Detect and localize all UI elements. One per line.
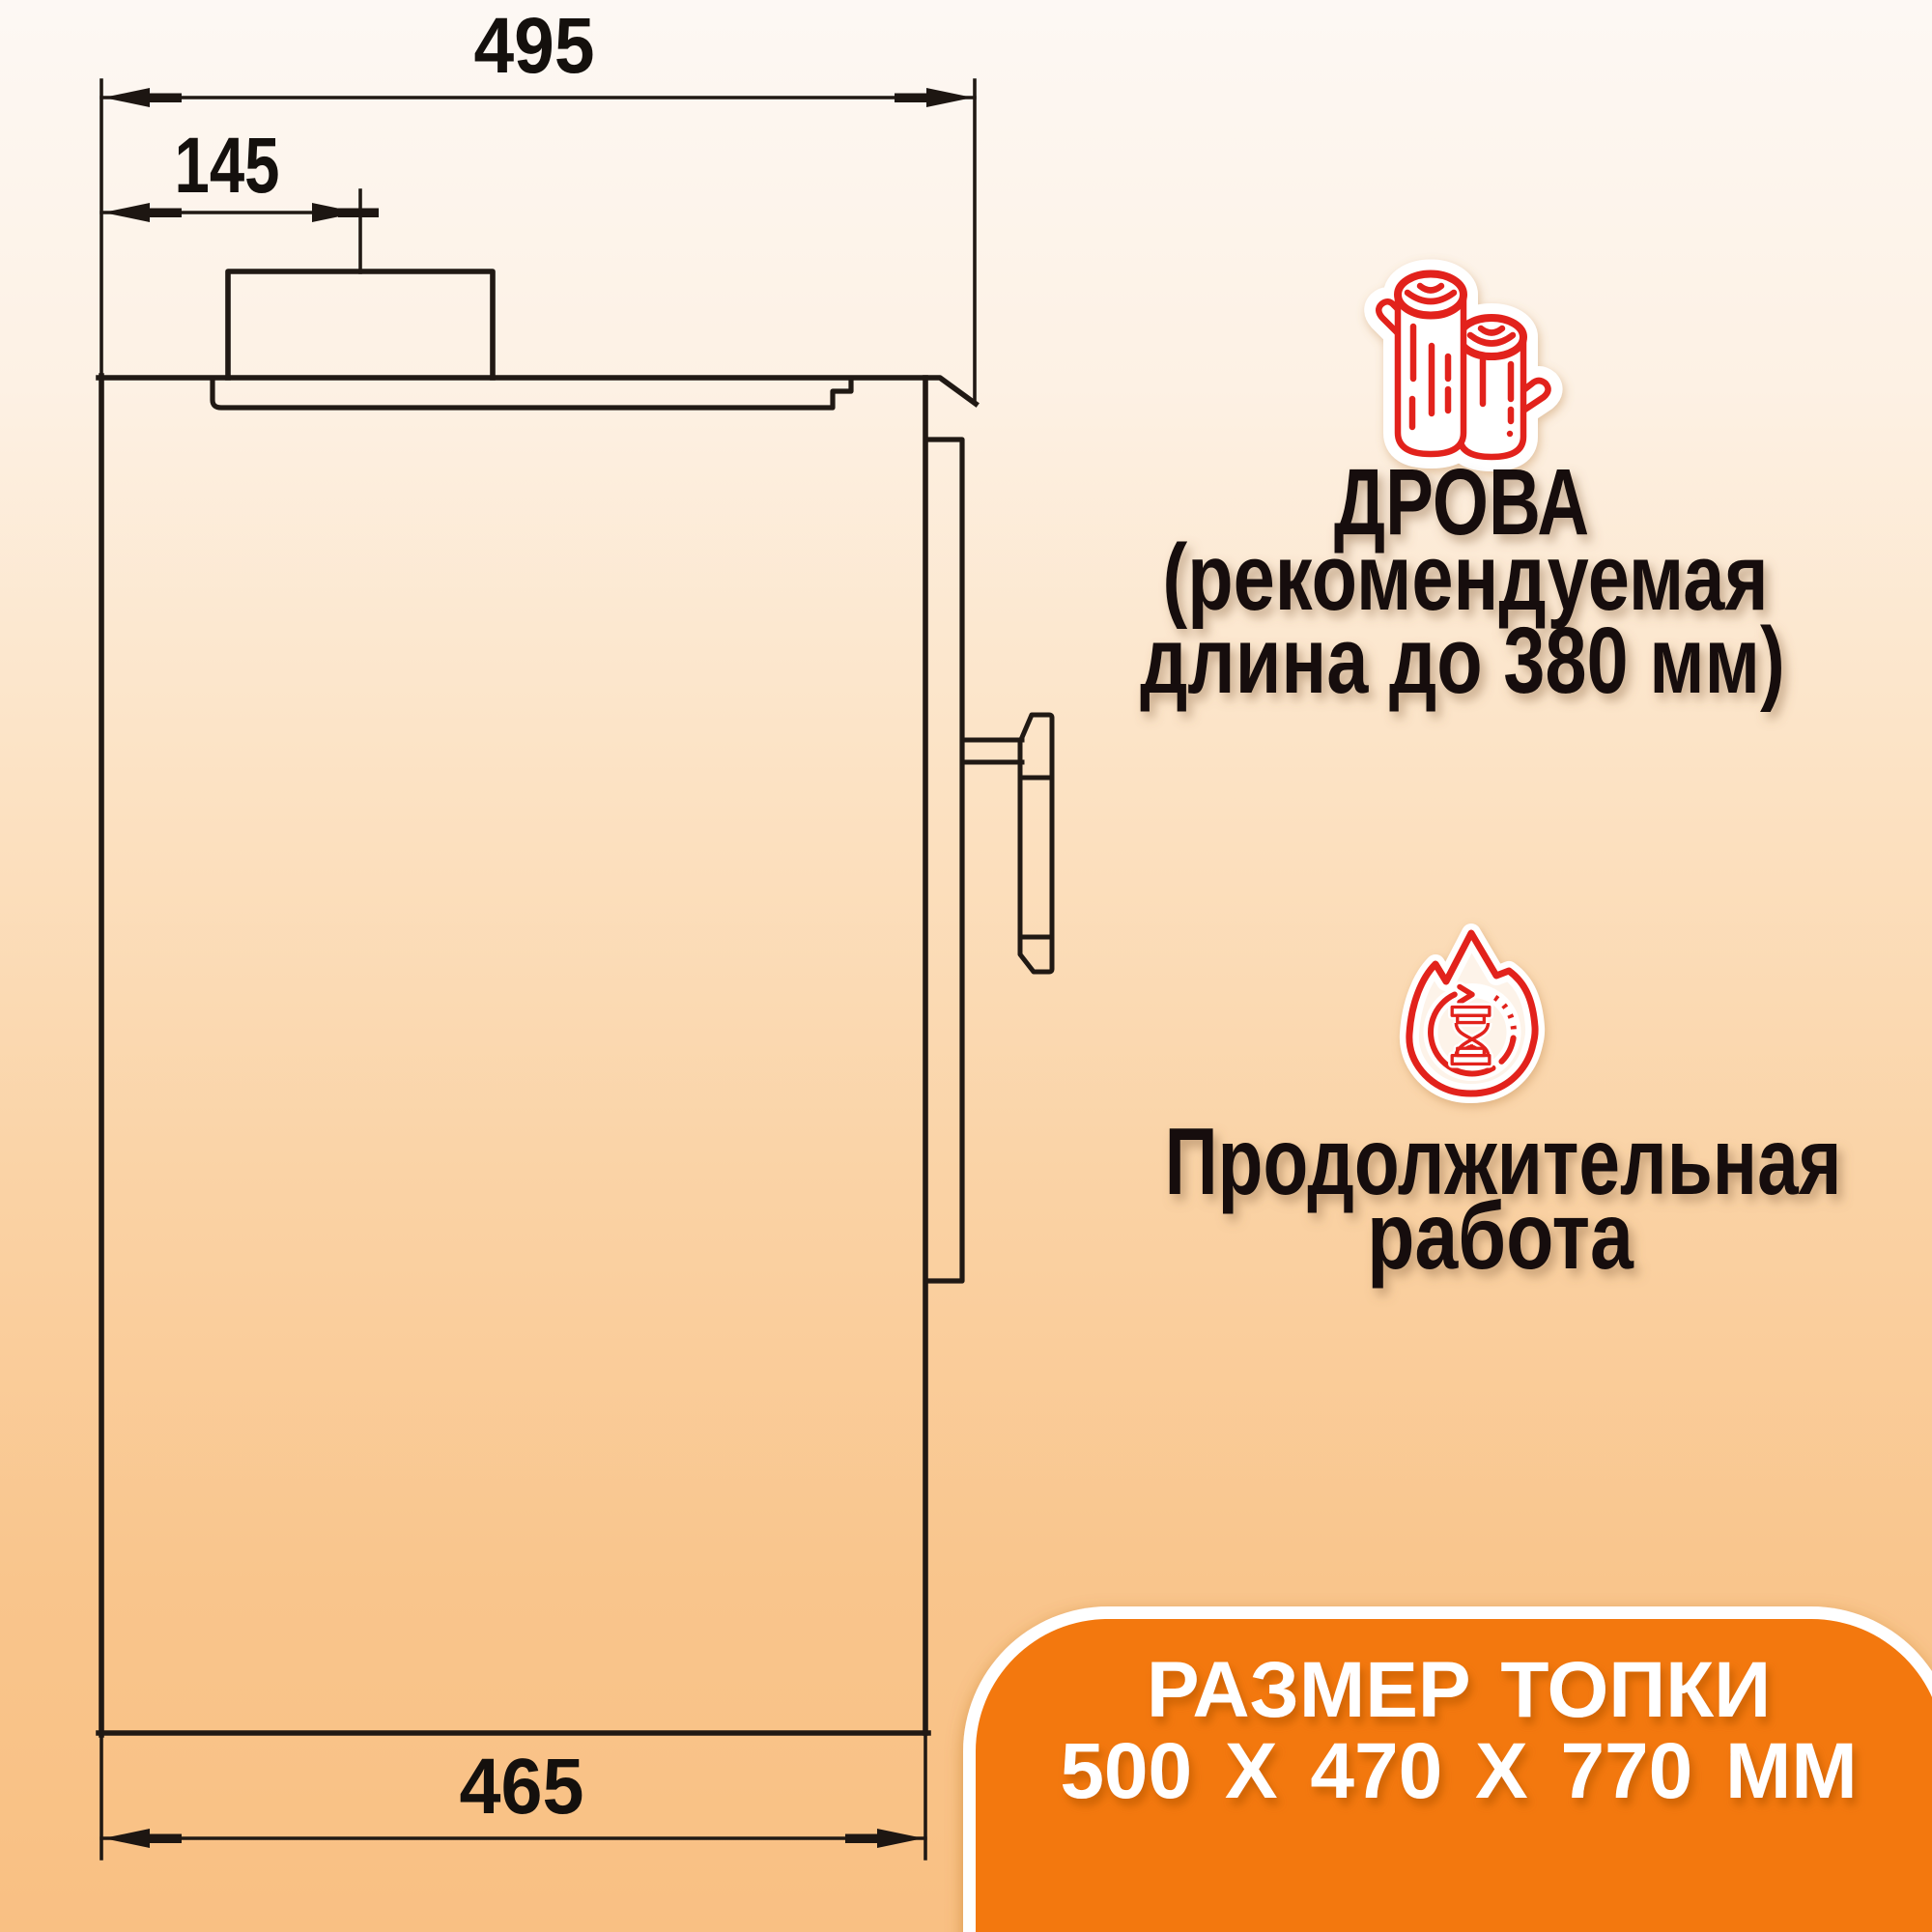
svg-text:длина до 380 мм): длина до 380 мм) xyxy=(1140,608,1785,713)
svg-text:465: 465 xyxy=(459,1742,583,1831)
svg-text:РАЗМЕР ТОПКИ: РАЗМЕР ТОПКИ xyxy=(1147,1646,1771,1734)
svg-text:495: 495 xyxy=(473,1,594,90)
svg-text:145: 145 xyxy=(174,121,279,210)
svg-text:500 Х 470 Х 770 ММ: 500 Х 470 Х 770 ММ xyxy=(1060,1727,1857,1815)
svg-text:работа: работа xyxy=(1367,1184,1634,1290)
